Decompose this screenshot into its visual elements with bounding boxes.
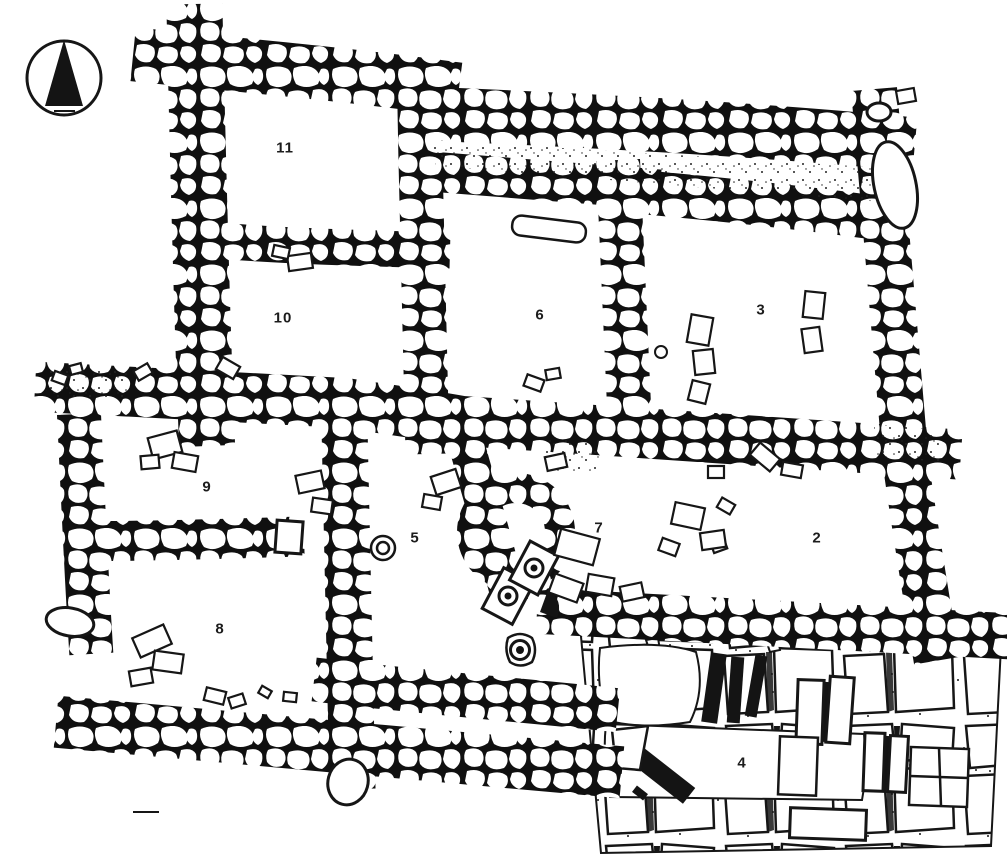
wall-west-room5 bbox=[344, 404, 352, 766]
ring-stone bbox=[371, 536, 395, 560]
cross-slab bbox=[909, 747, 969, 807]
north-arrow-icon bbox=[27, 40, 101, 115]
wall-east-room2 bbox=[903, 444, 933, 638]
fallen-pillar-stone bbox=[511, 215, 587, 244]
site-plan-drawing bbox=[0, 0, 1007, 866]
wall-bench-room9 bbox=[103, 537, 284, 541]
wall-north-room11 bbox=[160, 57, 432, 86]
ring-stone bbox=[655, 346, 667, 358]
wall-north-spread bbox=[434, 114, 888, 142]
wall-south-room5 bbox=[336, 682, 596, 708]
wall-rooms6-3-divider bbox=[619, 182, 630, 428]
wall-rooms11-10-divider bbox=[210, 240, 432, 250]
site-plan-page: 111063957284 bbox=[0, 0, 1007, 866]
socket-stone bbox=[506, 634, 535, 666]
